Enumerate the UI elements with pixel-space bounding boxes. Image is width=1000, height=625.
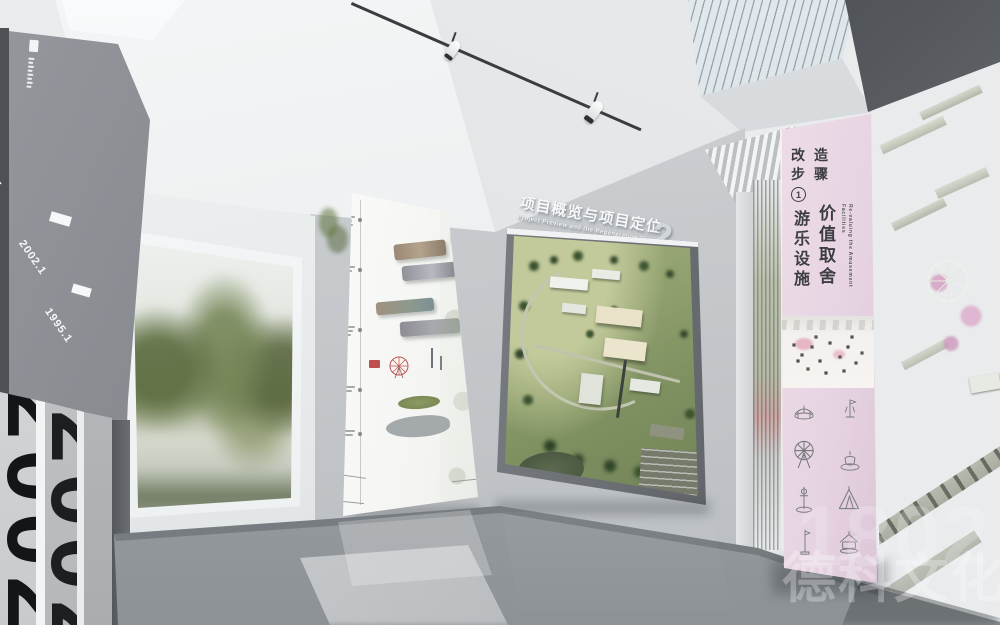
- timeline-tick: [358, 268, 362, 272]
- map-trees: [492, 212, 496, 216]
- map-building: [578, 373, 603, 405]
- site-map-pink-zone: [833, 350, 845, 359]
- slat-screen-tint: [753, 180, 781, 550]
- swing-ride-icon: [837, 396, 863, 429]
- teacup-ride-icon: [837, 446, 863, 479]
- step-label-block: 改造 步骤 1: [791, 146, 837, 202]
- site-map-dots: [781, 316, 783, 318]
- timeline-tower: [431, 348, 433, 368]
- timeline-tick: [358, 218, 362, 222]
- wall-pilaster: [736, 192, 754, 548]
- masterplan-board: [492, 212, 714, 512]
- ferris-wheel-icon: [924, 257, 972, 305]
- timeline-red-kiosk: [369, 360, 380, 368]
- ferris-wheel-icon: [789, 438, 819, 475]
- timeline-tick: [358, 388, 362, 392]
- exhibition-hall-render: 项目概览与项目定位 Project Preview and the Regene…: [0, 0, 1000, 625]
- timeline-ferris-wheel-icon: [386, 354, 412, 380]
- timeline-tick: [358, 432, 362, 436]
- carousel-icon: [791, 400, 817, 433]
- sign-logo-block: [29, 40, 39, 53]
- step-number: 1: [796, 190, 801, 200]
- step-line: 改造: [791, 146, 837, 165]
- timeline-axis: [360, 200, 361, 505]
- site-map-ridge: [781, 320, 874, 330]
- panel-title-facility: 游乐设施: [787, 210, 811, 320]
- watermark-brand: 德科文化: [782, 534, 1000, 613]
- window-view-blur: [120, 230, 310, 520]
- step-line: 步骤: [791, 165, 837, 184]
- board-map: [492, 212, 714, 512]
- timeline-tick: [358, 328, 362, 332]
- site-map-pink-zone: [795, 338, 813, 350]
- step-number-circle: 1: [791, 187, 806, 202]
- panel-subtitle-en: Re-valuing the Amusement Facilities: [837, 204, 853, 308]
- panel-title-value: 价值取舍: [813, 204, 838, 314]
- timeline-tick-label: [344, 428, 355, 438]
- plant-decal: [314, 208, 350, 256]
- timeline-tower: [440, 356, 442, 370]
- map-building-dark: [649, 424, 684, 441]
- panel-site-map: [781, 316, 874, 388]
